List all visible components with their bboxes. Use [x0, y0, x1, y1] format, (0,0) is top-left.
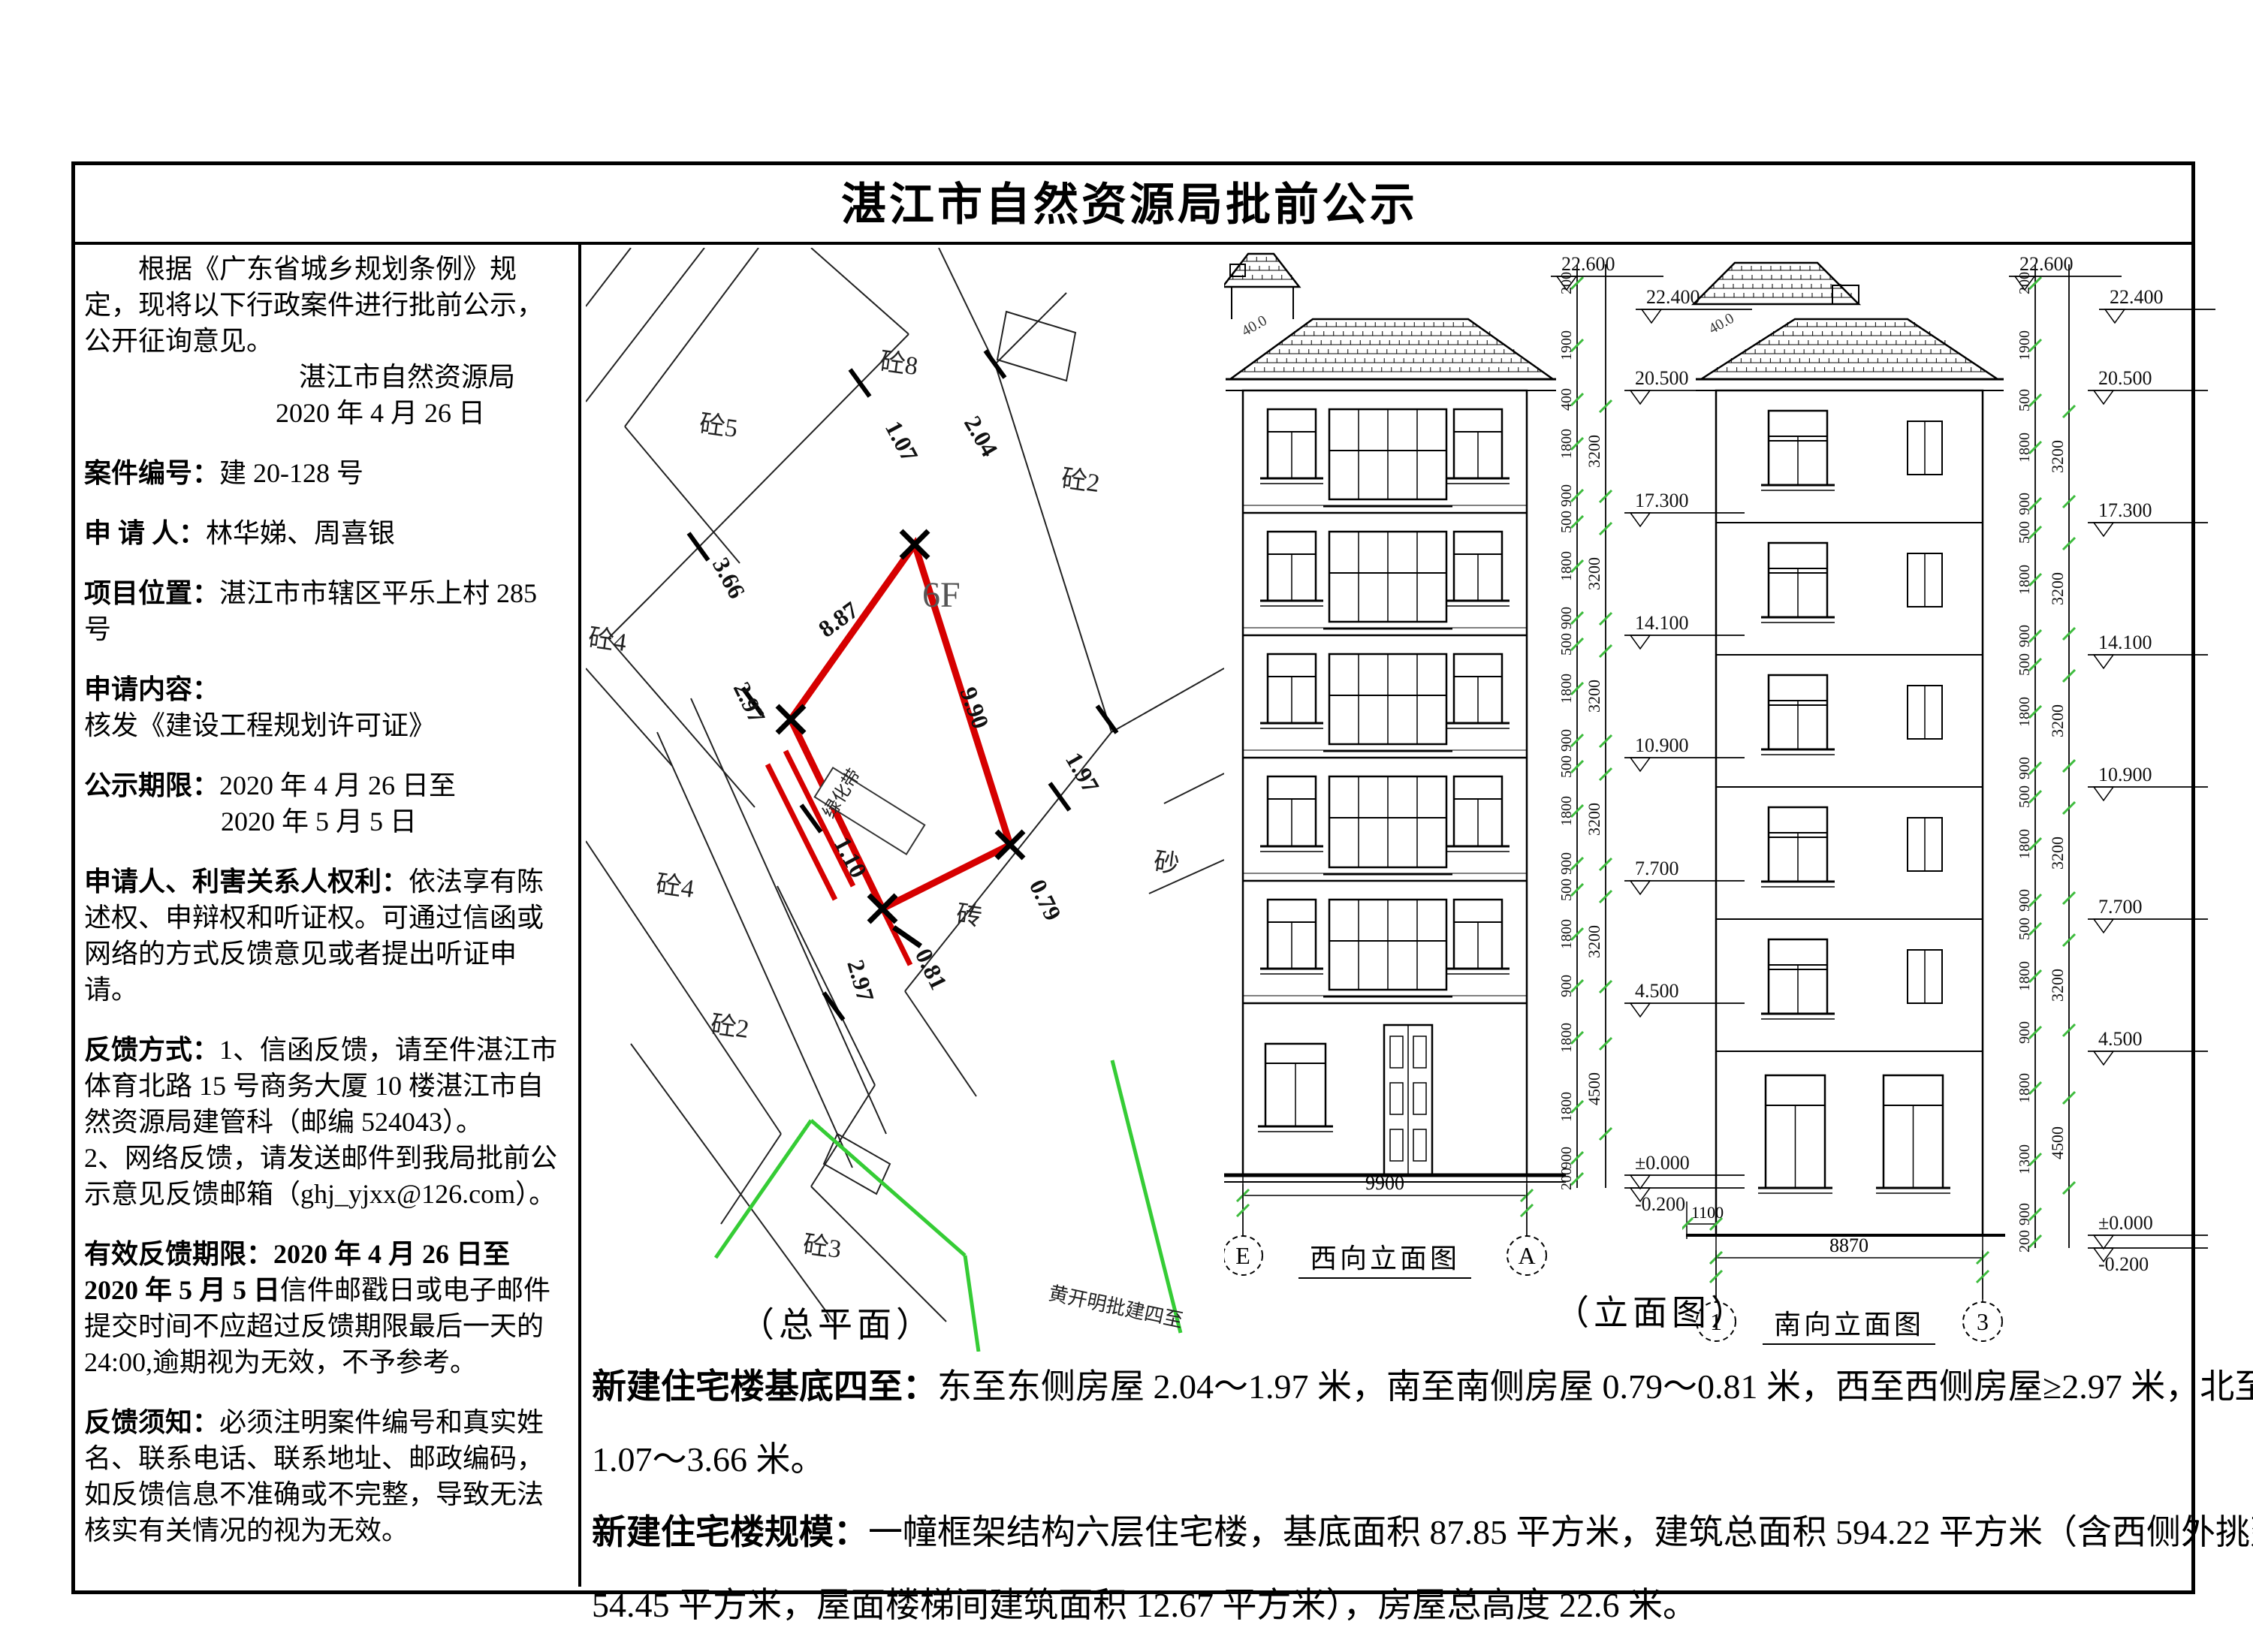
width-dimension: 8870: [1829, 1234, 1868, 1256]
coarse-dimension: 3200: [2048, 837, 2067, 870]
fine-dimension: 900: [2016, 493, 2033, 515]
fine-dimension: 200: [2016, 1230, 2033, 1253]
svg-text:砂: 砂: [1152, 847, 1181, 879]
site-plan-caption: （总平面）: [740, 1298, 935, 1347]
fine-dimension: 1800: [2016, 697, 2033, 727]
fine-dimension: 900: [1558, 975, 1575, 997]
rights-paragraph: 申请人、利害关系人权利：依法享有陈述权、申辩权和听证权。可通过信函或网络的方式反…: [84, 864, 568, 1008]
fine-dimension: 500: [1558, 511, 1575, 533]
elevation-flag: 20.500: [1635, 367, 1689, 389]
fine-dimension: 500: [2016, 918, 2033, 940]
valid-period-paragraph: 有效反馈期限：2020 年 4 月 26 日至 2020 年 5 月 5 日信件…: [84, 1236, 568, 1380]
grid-bubble: 3: [1977, 1308, 1989, 1335]
title-divider: [71, 242, 2191, 245]
fine-dimension: 900: [2016, 1203, 2033, 1225]
dim-south1: 0.79: [1024, 875, 1067, 924]
fine-dimension: 900: [1558, 607, 1575, 629]
svg-text:砖: 砖: [955, 900, 984, 931]
fine-dimension: 500: [1558, 879, 1575, 901]
period-line2: 2020 年 5 月 5 日: [84, 803, 568, 840]
feedback-paragraph: 反馈方式：1、信函反馈，请至件湛江市体育北路 15 号商务大厦 10 楼湛江市自…: [84, 1032, 568, 1212]
grid-bubble: E: [1235, 1242, 1250, 1269]
fine-dimension: 1900: [1558, 330, 1575, 360]
period-line: 公示期限：2020 年 4 月 26 日至: [84, 767, 568, 803]
site-plan-drawing: 黄开明批建四至 绿化带 1.07 2.04 3.66 2.97 8.87 9.9…: [586, 248, 1224, 1352]
fine-dimension: 900: [1558, 729, 1575, 752]
svg-text:砼4: 砼4: [654, 870, 696, 903]
elevation-flag: 4.500: [2098, 1028, 2143, 1050]
svg-text:砼4: 砼4: [587, 623, 629, 657]
column-divider: [578, 242, 581, 1587]
coarse-dimension: 3200: [2048, 704, 2067, 737]
location-line: 项目位置：湛江市市辖区平乐上村 285 号: [84, 575, 568, 647]
width-dimension: 9900: [1365, 1172, 1404, 1194]
svg-text:砼2: 砼2: [1060, 464, 1102, 498]
fine-dimension: 500: [1558, 755, 1575, 778]
fine-dimension: 1800: [1558, 674, 1575, 704]
green-plot-label: 黄开明批建四至: [1047, 1283, 1185, 1332]
fine-dimension: 1800: [1558, 796, 1575, 826]
elevation-caption: 西向立面图: [1310, 1244, 1460, 1274]
elevation-flag: 22.600: [1561, 253, 1615, 275]
elevation-flag: 7.700: [2098, 896, 2143, 918]
coarse-dimension: 4500: [1585, 1072, 1603, 1105]
elevation-flag: -0.200: [1635, 1193, 1685, 1215]
applicant-line: 申 请 人：林华娣、周喜银: [84, 515, 568, 551]
dim-south2: 0.81: [910, 944, 953, 993]
parcel-boundaries: [586, 248, 1224, 1322]
fine-dimension: 900: [2016, 757, 2033, 779]
notice-panel: 根据《广东省城乡规划条例》规定，现将以下行政案件进行批前公示，公开征询意见。 湛…: [84, 251, 568, 1548]
grid-bubble: A: [1518, 1242, 1535, 1269]
offset-dimension: 1100: [1691, 1203, 1724, 1222]
fine-dimension: 1800: [2016, 433, 2033, 463]
case-number-line: 案件编号：建 20-128 号: [84, 455, 568, 491]
south-elevation-drawing: 40.08870110013南向立面图200190050018009005001…: [1682, 248, 2245, 1367]
dim-east1: 2.04: [959, 411, 1003, 461]
footprint-setbacks-line1: 新建住宅楼基底四至：东至东侧房屋 2.04～1.97 米，南至南侧房屋 0.79…: [592, 1350, 2178, 1423]
footer-notes: 新建住宅楼基底四至：东至东侧房屋 2.04～1.97 米，南至南侧房屋 0.79…: [592, 1350, 2178, 1641]
fine-dimension: 900: [2016, 889, 2033, 912]
fine-dimension: 1800: [1558, 1023, 1575, 1053]
dim-west1: 2.97: [728, 677, 771, 727]
elevation-flag: 10.900: [2098, 764, 2152, 785]
roof-note: 40.0: [1239, 312, 1270, 340]
fine-dimension: 200: [1558, 1168, 1575, 1190]
fine-dimension: 900: [1558, 1147, 1575, 1169]
coarse-dimension: 3200: [1585, 925, 1603, 958]
footprint-setbacks-line2: 1.07～3.66 米。: [592, 1423, 2178, 1496]
coarse-dimension: 3200: [2048, 969, 2067, 1002]
page-title: 湛江市自然资源局批前公示: [71, 168, 2188, 234]
west-elevation-drawing: 40.09900EA西向立面图2001900400180090050018009…: [1224, 248, 1757, 1292]
fine-dimension: 1800: [1558, 429, 1575, 459]
fine-dimension: 1800: [1558, 919, 1575, 949]
dim-east2: 1.97: [1060, 748, 1105, 797]
fine-dimension: 200: [1558, 272, 1575, 294]
fine-dimension: 500: [2016, 653, 2033, 676]
elevation-caption: 南向立面图: [1774, 1310, 1924, 1340]
elevation-flag: 22.400: [2110, 286, 2164, 308]
elevation-flag: -0.200: [2098, 1253, 2149, 1275]
coarse-dimension: 3200: [2048, 440, 2067, 473]
fine-dimension: 500: [2016, 521, 2033, 544]
note-paragraph: 反馈须知：必须注明案件编号和真实姓名、联系电话、联系地址、邮政编码，如反馈信息不…: [84, 1404, 568, 1548]
content-line: 申请内容：核发《建设工程规划许可证》: [84, 671, 568, 743]
coarse-dimension: 3200: [1585, 803, 1603, 836]
building-scale-line2: 54.45 平方米，屋面楼梯间建筑面积 12.67 平方米），房屋总高度 22.…: [592, 1569, 2178, 1641]
dim-edge-east: 9.90: [955, 683, 994, 732]
fine-dimension: 1800: [2016, 961, 2033, 991]
fine-dimension: 1900: [2016, 330, 2033, 360]
notice-intro: 根据《广东省城乡规划条例》规定，现将以下行政案件进行批前公示，公开征询意见。: [84, 251, 568, 359]
elevation-flag: 14.100: [1635, 612, 1689, 634]
fine-dimension: 900: [1558, 852, 1575, 875]
elevation-flag: 4.500: [1635, 980, 1679, 1002]
coarse-dimension: 3200: [1585, 557, 1603, 590]
inner-strip-label: 绿化带: [810, 759, 930, 862]
elevation-flag: ±0.000: [2098, 1212, 2153, 1234]
elevation-flag: 10.900: [1635, 734, 1689, 756]
notice-agency: 湛江市自然资源局: [84, 359, 568, 395]
coarse-dimension: 4500: [2048, 1126, 2067, 1159]
fine-dimension: 1800: [2016, 829, 2033, 859]
notice-date: 2020 年 4 月 26 日: [84, 395, 568, 431]
elevation-flag: 14.100: [2098, 632, 2152, 653]
fine-dimension: 500: [2016, 389, 2033, 411]
elevation-flag: 7.700: [1635, 858, 1679, 879]
coarse-dimension: 3200: [2048, 572, 2067, 605]
elevation-flag: 17.300: [2098, 499, 2152, 521]
grid-bubble: 1: [1710, 1308, 1722, 1335]
fine-dimension: 1300: [2016, 1144, 2033, 1174]
fine-dimension: 900: [2016, 1021, 2033, 1044]
elevation-flag: 22.600: [2019, 253, 2074, 275]
survey-cross-markers: [777, 531, 1024, 946]
elevation-flag: ±0.000: [1635, 1152, 1690, 1174]
elevation-flag: 20.500: [2098, 367, 2152, 389]
fine-dimension: 1800: [2016, 1073, 2033, 1103]
building-scale-line1: 新建住宅楼规模：一幢框架结构六层住宅楼，基底面积 87.85 平方米，建筑总面积…: [592, 1496, 2178, 1569]
fine-dimension: 500: [1558, 633, 1575, 656]
fine-dimension: 1800: [1558, 1092, 1575, 1122]
fine-dimension: 1800: [2016, 565, 2033, 595]
coarse-dimension: 3200: [1585, 435, 1603, 468]
plot-floors-label: 6F: [922, 575, 961, 615]
fine-dimension: 400: [1558, 388, 1575, 411]
plan-dimensions: 1.07 2.04 3.66 2.97 8.87 9.90 1.10 1.97 …: [707, 411, 1105, 1005]
fine-dimension: 200: [2016, 272, 2033, 294]
dim-west2: 2.97: [842, 957, 879, 1005]
svg-text:砼3: 砼3: [801, 1230, 843, 1264]
fine-dimension: 500: [2016, 785, 2033, 808]
roof-note: 40.0: [1706, 310, 1737, 338]
elevation-flag: 17.300: [1635, 490, 1689, 511]
dim-north2: 3.66: [707, 553, 751, 602]
fine-dimension: 900: [1558, 484, 1575, 507]
fine-dimension: 900: [2016, 625, 2033, 647]
dim-edge-north: 8.87: [813, 596, 863, 643]
svg-text:砼2: 砼2: [709, 1010, 751, 1044]
dim-north1: 1.07: [880, 416, 924, 466]
fine-dimension: 1800: [1558, 551, 1575, 581]
coarse-dimension: 3200: [1585, 680, 1603, 713]
svg-text:砼8: 砼8: [878, 347, 920, 381]
svg-text:砼5: 砼5: [698, 409, 740, 443]
